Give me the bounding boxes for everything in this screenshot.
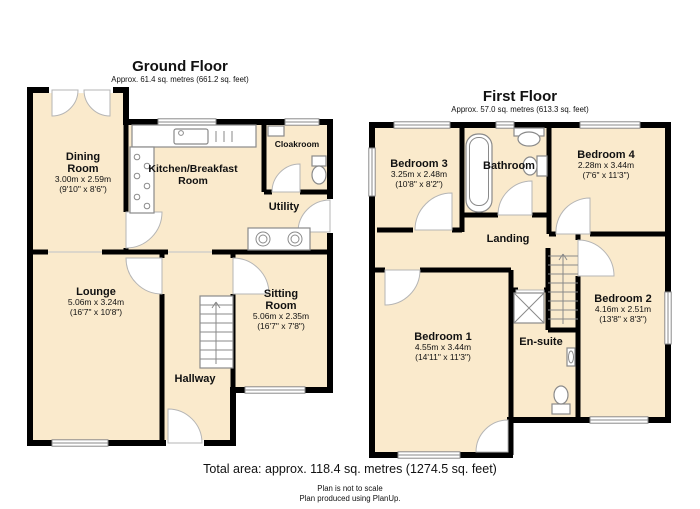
room-label-cloakroom: Cloakroom — [267, 140, 327, 149]
first-floor-subtitle: Approx. 57.0 sq. metres (613.3 sq. feet) — [420, 105, 620, 115]
room-label-kitchen: Kitchen/Breakfast Room — [134, 163, 252, 187]
room-label-ensuite: En-suite — [511, 336, 571, 348]
room-label-utility: Utility — [254, 201, 314, 213]
floorplan-page: { "colors":{ "room_fill":"#faeacc", "wal… — [0, 0, 700, 509]
room-label-bedroom3: Bedroom 3 3.25m x 2.48m (10'8" x 8'2") — [375, 158, 463, 189]
room-label-lounge: Lounge 5.06m x 3.24m (16'7" x 10'8") — [46, 286, 146, 317]
ground-stairs-icon — [200, 296, 233, 368]
ground-floor-title-block: Ground Floor Approx. 61.4 sq. metres (66… — [80, 58, 280, 85]
room-label-dining: Dining Room 3.00m x 2.59m (9'10" x 8'6") — [56, 151, 110, 194]
utility-appliances-icon — [248, 228, 310, 250]
room-label-bedroom1: Bedroom 1 4.55m x 3.44m (14'11" x 11'3") — [388, 331, 498, 362]
kitchen-counter-icon — [132, 125, 256, 147]
ensuite-sink-icon — [567, 348, 575, 366]
ground-floor-subtitle: Approx. 61.4 sq. metres (661.2 sq. feet) — [80, 75, 280, 85]
room-label-bedroom2: Bedroom 2 4.16m x 2.51m (13'8" x 8'3") — [579, 293, 667, 324]
room-label-bathroom: Bathroom — [469, 160, 549, 172]
total-area-text: Total area: approx. 118.4 sq. metres (12… — [0, 462, 700, 476]
room-label-sitting-room: Sitting Room 5.06m x 2.35m (16'7" x 7'8"… — [255, 288, 307, 331]
first-floor-title-block: First Floor Approx. 57.0 sq. metres (613… — [420, 88, 620, 115]
bath-icon — [466, 134, 492, 212]
room-label-hallway: Hallway — [160, 373, 230, 385]
shower-icon — [514, 293, 544, 323]
first-floor-title: First Floor — [420, 88, 620, 105]
ground-floor-title: Ground Floor — [80, 58, 280, 75]
planup-credit-note: Plan produced using PlanUp. — [0, 494, 700, 503]
room-label-bedroom4: Bedroom 4 2.28m x 3.44m (7'6" x 11'3") — [551, 149, 661, 180]
room-label-landing: Landing — [468, 233, 548, 245]
not-to-scale-note: Plan is not to scale — [0, 484, 700, 493]
ensuite-wc-icon — [552, 386, 570, 414]
